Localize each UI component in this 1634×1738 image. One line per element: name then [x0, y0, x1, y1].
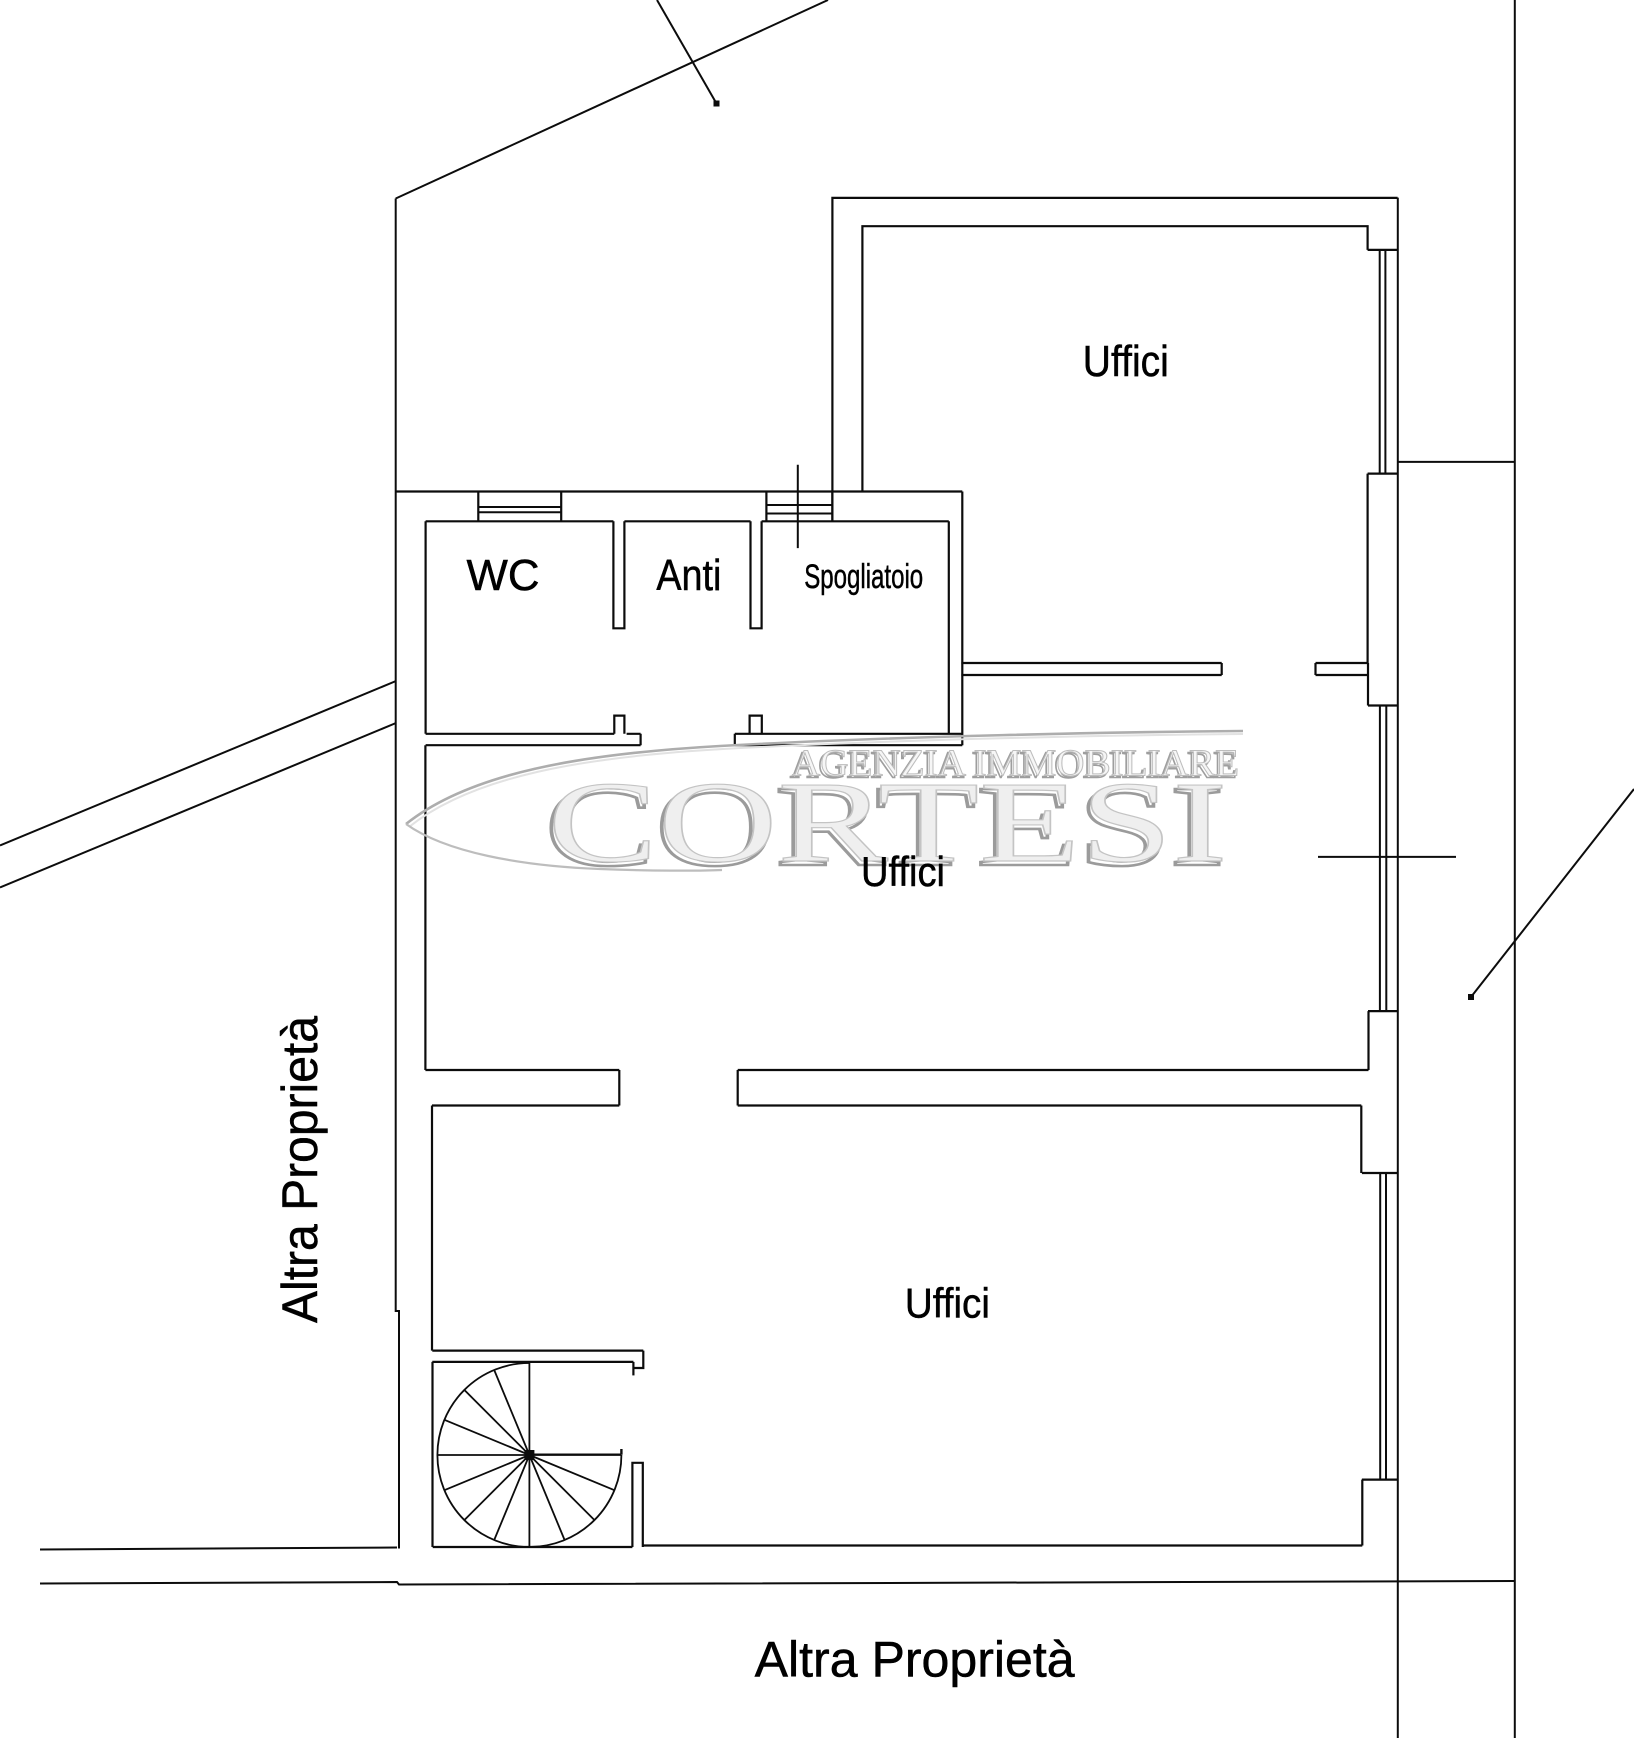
- svg-text:Uffici: Uffici: [861, 848, 945, 895]
- svg-text:Anti: Anti: [656, 551, 721, 600]
- svg-text:WC: WC: [467, 551, 540, 600]
- svg-text:Altra Proprietà: Altra Proprietà: [272, 1016, 328, 1323]
- svg-text:Uffici: Uffici: [1083, 337, 1169, 386]
- svg-text:Altra Proprietà: Altra Proprietà: [755, 1632, 1075, 1688]
- svg-text:Spogliatoio: Spogliatoio: [804, 558, 923, 596]
- svg-text:Uffici: Uffici: [905, 1280, 990, 1327]
